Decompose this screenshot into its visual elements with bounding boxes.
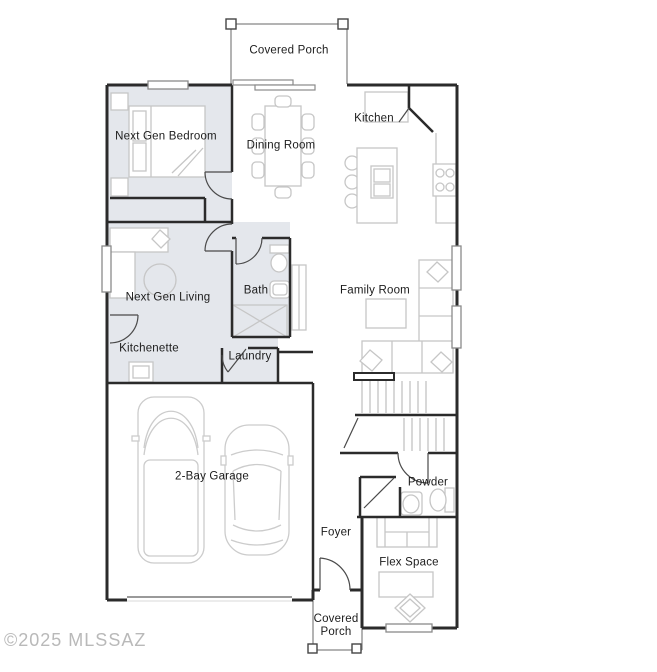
room-label-laundry: Laundry — [229, 351, 272, 364]
room-label-next-gen-bedroom: Next Gen Bedroom — [115, 131, 217, 144]
room-label-dining-room: Dining Room — [247, 140, 316, 153]
covered-porch-bottom-line1: Covered — [314, 613, 359, 626]
floor-plan-drawing — [0, 0, 657, 672]
bath-sink — [270, 281, 290, 298]
room-label-kitchen: Kitchen — [354, 113, 394, 126]
room-label-bath: Bath — [244, 285, 268, 298]
living-window — [102, 246, 111, 292]
kitchenette-appliance — [129, 362, 153, 382]
bedroom-window — [148, 81, 188, 89]
bath-toilet — [270, 245, 289, 272]
room-label-covered-porch-top: Covered Porch — [249, 45, 328, 58]
media-console — [292, 265, 306, 330]
room-label-flex-space: Flex Space — [379, 557, 439, 570]
room-label-kitchenette: Kitchenette — [119, 343, 179, 356]
covered-porch-bottom-line2: Porch — [314, 626, 359, 639]
room-label-garage: 2-Bay Garage — [175, 471, 249, 484]
flex-window — [386, 624, 432, 632]
garage-door — [127, 597, 292, 601]
room-label-family-room: Family Room — [340, 285, 410, 298]
desk — [379, 572, 433, 597]
car — [221, 425, 293, 555]
stove — [433, 164, 456, 196]
kitchen-island — [345, 148, 397, 223]
room-label-next-gen-living: Next Gen Living — [126, 292, 211, 305]
room-label-covered-porch-bottom: Covered Porch — [314, 613, 359, 639]
office-chair — [395, 594, 425, 622]
flex-sofa — [377, 517, 437, 547]
family-window-upper — [452, 246, 461, 290]
family-window-lower — [452, 306, 461, 348]
room-label-foyer: Foyer — [321, 527, 351, 540]
coffee-table — [366, 299, 406, 328]
foyer-closet-door — [364, 478, 394, 508]
powder-toilet — [430, 488, 454, 512]
powder-sink — [401, 492, 422, 515]
sliding-glass-door — [233, 80, 315, 90]
watermark: ©2025 MLSSAZ — [4, 630, 146, 651]
room-label-powder: Powder — [408, 477, 448, 490]
front-door — [320, 558, 350, 590]
floor-plan: Covered Porch Next Gen Bedroom Dining Ro… — [0, 0, 657, 672]
understair-closet-door — [344, 418, 358, 448]
stairs — [354, 373, 444, 451]
stair-rail — [354, 373, 394, 380]
